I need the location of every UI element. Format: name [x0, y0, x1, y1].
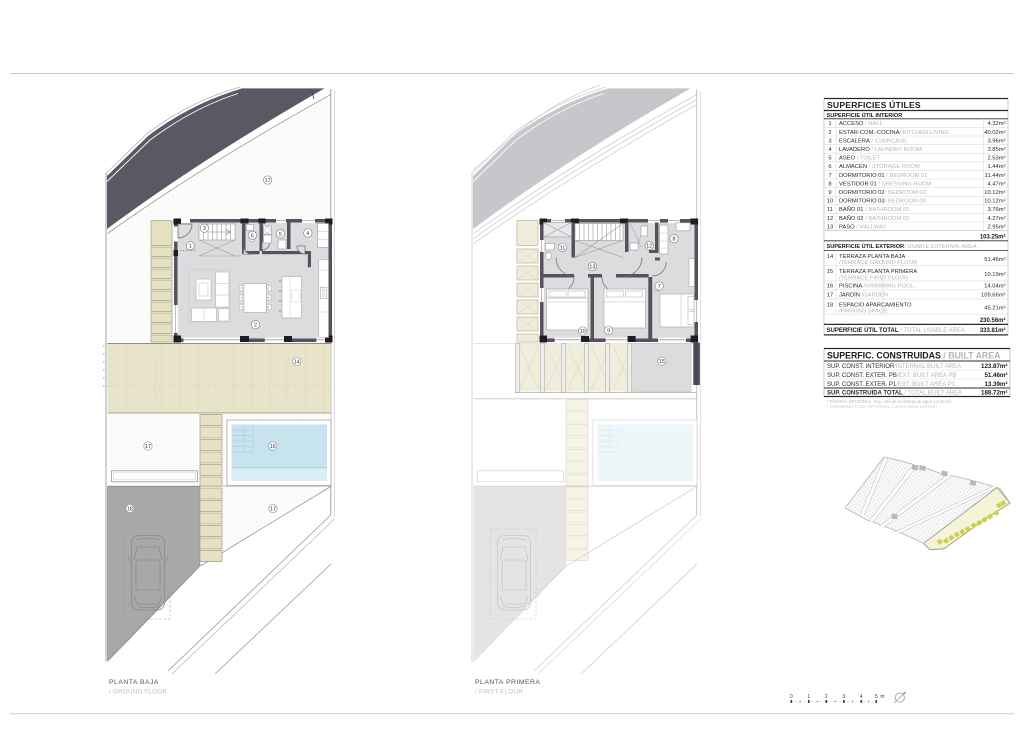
svg-text:17: 17 — [827, 292, 833, 298]
svg-text:17: 17 — [265, 178, 271, 184]
svg-text:ALMACÉN / STORAGE ROOM: ALMACÉN / STORAGE ROOM — [839, 163, 920, 170]
svg-text:1: 1 — [807, 694, 810, 700]
svg-text:16: 16 — [270, 444, 276, 450]
svg-text:5: 5 — [875, 694, 878, 700]
svg-text:2: 2 — [828, 130, 831, 136]
svg-text:3: 3 — [203, 226, 206, 232]
svg-text:13: 13 — [827, 224, 833, 230]
svg-text:PLANTA PRIMERA: PLANTA PRIMERA — [475, 679, 540, 686]
svg-text:4.27m²: 4.27m² — [987, 216, 1005, 222]
svg-text:10.12m²: 10.12m² — [984, 199, 1005, 205]
svg-text:10.19m²: 10.19m² — [984, 272, 1005, 278]
svg-text:51.46m²: 51.46m² — [984, 372, 1007, 379]
svg-text:7: 7 — [658, 284, 661, 290]
svg-text:14.04m²: 14.04m² — [984, 283, 1005, 289]
svg-text:SUPERFICIE ÚTIL INTERIOR: SUPERFICIE ÚTIL INTERIOR — [827, 112, 903, 119]
svg-text:16: 16 — [827, 283, 833, 289]
svg-text:2: 2 — [825, 694, 828, 700]
svg-text:ASEO / TOILET: ASEO / TOILET — [839, 156, 880, 162]
svg-text:14: 14 — [294, 360, 300, 366]
svg-text:13: 13 — [589, 265, 595, 271]
svg-text:10: 10 — [580, 329, 586, 335]
svg-text:PLANTA BAJA: PLANTA BAJA — [109, 679, 159, 686]
svg-text:4: 4 — [860, 694, 863, 700]
svg-text:9: 9 — [828, 190, 831, 196]
svg-text:4: 4 — [306, 231, 309, 237]
svg-text:SUPERFICIE ÚTIL TOTAL / TOTAL: SUPERFICIE ÚTIL TOTAL / TOTAL USABLE ARE… — [827, 327, 966, 334]
svg-text:1: 1 — [189, 244, 192, 250]
svg-text:JARDÍN /GARDEN: JARDÍN /GARDEN — [839, 291, 888, 298]
svg-text:7: 7 — [828, 173, 831, 179]
svg-text:18: 18 — [127, 507, 133, 513]
svg-text:* SWIMMING POOL OPTIONAL (Lámi: * SWIMMING POOL OPTIONAL (Lámina agua 14… — [827, 404, 937, 409]
svg-text:SUPERFIC. CONSTRUIDAS / BUILT: SUPERFIC. CONSTRUIDAS / BUILT AREA — [827, 350, 1001, 360]
svg-text:17: 17 — [145, 444, 151, 450]
svg-text:11: 11 — [560, 245, 566, 251]
svg-text:3.85m²: 3.85m² — [987, 147, 1005, 153]
svg-text:45.21m²: 45.21m² — [984, 306, 1005, 312]
svg-text:PISCINA /SWIMMING POOL: PISCINA /SWIMMING POOL — [839, 283, 915, 289]
svg-text:DORMITORIO 03/ BEDROOM 03: DORMITORIO 03/ BEDROOM 03 — [839, 199, 926, 205]
svg-text:2.95m²: 2.95m² — [987, 224, 1005, 230]
svg-text:13.39m²: 13.39m² — [984, 381, 1007, 388]
svg-text:40.02m²: 40.02m² — [984, 130, 1005, 136]
svg-text:m: m — [880, 694, 884, 700]
svg-text:4.32m²: 4.32m² — [987, 121, 1005, 127]
svg-text:9: 9 — [607, 328, 610, 334]
svg-text:109.66m²: 109.66m² — [981, 292, 1006, 298]
svg-text:3: 3 — [842, 694, 845, 700]
svg-text:/TERRACE GROUND FLOOR: /TERRACE GROUND FLOOR — [839, 260, 917, 266]
svg-text:SUP. CONST. EXTER. P1/EXT. BUI: SUP. CONST. EXTER. P1/EXT. BUILT AREA P1 — [827, 382, 956, 388]
svg-text:/ GROUND FLOOR: / GROUND FLOOR — [109, 689, 167, 696]
svg-text:5: 5 — [828, 156, 831, 162]
svg-text:6: 6 — [251, 233, 254, 239]
svg-text:ACCESO / HALL: ACCESO / HALL — [839, 121, 884, 127]
svg-text:DORMITORIO 01 / BEDROOM 01: DORMITORIO 01 / BEDROOM 01 — [839, 173, 927, 179]
svg-text:12: 12 — [646, 244, 652, 250]
svg-text:333.81m²: 333.81m² — [980, 327, 1006, 334]
svg-text:/TERRACE FIRST FLOOR: /TERRACE FIRST FLOOR — [839, 275, 908, 281]
svg-text:SUPERFICIES ÚTILES: SUPERFICIES ÚTILES — [827, 99, 921, 110]
svg-text:230.56m²: 230.56m² — [980, 317, 1006, 324]
svg-text:/ FIRST FLOOR: / FIRST FLOOR — [475, 689, 523, 696]
svg-text:SUPERFICIE ÚTIL EXTERIOR/ USAB: SUPERFICIE ÚTIL EXTERIOR/ USABLE EXTERNA… — [827, 243, 977, 250]
svg-text:2: 2 — [254, 323, 257, 329]
svg-text:ESTAR-COM.-COCINA/ KITCHEN-LIV: ESTAR-COM.-COCINA/ KITCHEN-LIVING — [839, 130, 950, 136]
svg-text:3: 3 — [828, 138, 831, 144]
svg-text:188.72m²: 188.72m² — [981, 390, 1008, 397]
svg-text:103.25m²: 103.25m² — [980, 234, 1006, 241]
svg-text:6: 6 — [828, 164, 831, 170]
svg-text:SUP. CONST. EXTER. PB/EXT. BUI: SUP. CONST. EXTER. PB/EXT. BUILT AREA PB — [827, 373, 956, 379]
svg-text:14: 14 — [827, 254, 834, 260]
svg-text:TERRAZA PLANTA PRIMERA: TERRAZA PLANTA PRIMERA — [839, 269, 917, 275]
svg-text:BAÑO 01 / BATHROOM 01: BAÑO 01 / BATHROOM 01 — [839, 206, 909, 213]
svg-text:ESPACIO APARCAMIENTO: ESPACIO APARCAMIENTO — [839, 303, 912, 309]
svg-text:1: 1 — [828, 121, 831, 127]
svg-text:4.47m²: 4.47m² — [987, 181, 1005, 187]
svg-text:/PARKING SPACE: /PARKING SPACE — [839, 309, 887, 315]
svg-text:3.96m²: 3.96m² — [987, 138, 1005, 144]
svg-text:15: 15 — [827, 269, 833, 275]
svg-text:PASO / HALLWAY: PASO / HALLWAY — [839, 224, 886, 230]
svg-text:12: 12 — [827, 216, 833, 222]
svg-text:17: 17 — [270, 507, 276, 513]
svg-text:0: 0 — [790, 694, 793, 700]
svg-text:8: 8 — [828, 181, 831, 187]
svg-text:ESCALERA / STAIRCASE: ESCALERA / STAIRCASE — [839, 138, 907, 144]
svg-text:15: 15 — [659, 359, 665, 365]
svg-text:10.12m²: 10.12m² — [984, 190, 1005, 196]
svg-text:5: 5 — [279, 232, 282, 238]
svg-text:11.44m²: 11.44m² — [985, 173, 1006, 179]
svg-text:51.46m²: 51.46m² — [984, 257, 1005, 263]
svg-text:10: 10 — [827, 199, 833, 205]
svg-text:2.53m²: 2.53m² — [987, 156, 1005, 162]
svg-text:11: 11 — [827, 207, 833, 213]
svg-text:123.87m²: 123.87m² — [981, 363, 1008, 370]
svg-text:18: 18 — [827, 303, 833, 309]
svg-text:VESTIDOR 01 / DRESSING ROOM: VESTIDOR 01 / DRESSING ROOM — [839, 181, 932, 187]
svg-text:SUP. CONST. INTERIOR/INTERNAL: SUP. CONST. INTERIOR/INTERNAL BUILT AREA — [827, 364, 961, 370]
svg-text:DORMITORIO 02/ BEDROOM 02: DORMITORIO 02/ BEDROOM 02 — [839, 190, 926, 196]
svg-text:1.44m²: 1.44m² — [987, 164, 1005, 170]
svg-text:SUP. CONSTRUIDA TOTAL / TOTAL: SUP. CONSTRUIDA TOTAL / TOTAL BUILT AREA — [827, 391, 962, 397]
svg-text:BAÑO 02 / BATHROOM 02: BAÑO 02 / BATHROOM 02 — [839, 215, 909, 222]
svg-text:LAVADERO / LAUNDRY ROOM: LAVADERO / LAUNDRY ROOM — [839, 147, 922, 153]
svg-text:8: 8 — [673, 237, 676, 243]
svg-text:3.76m²: 3.76m² — [987, 207, 1005, 213]
